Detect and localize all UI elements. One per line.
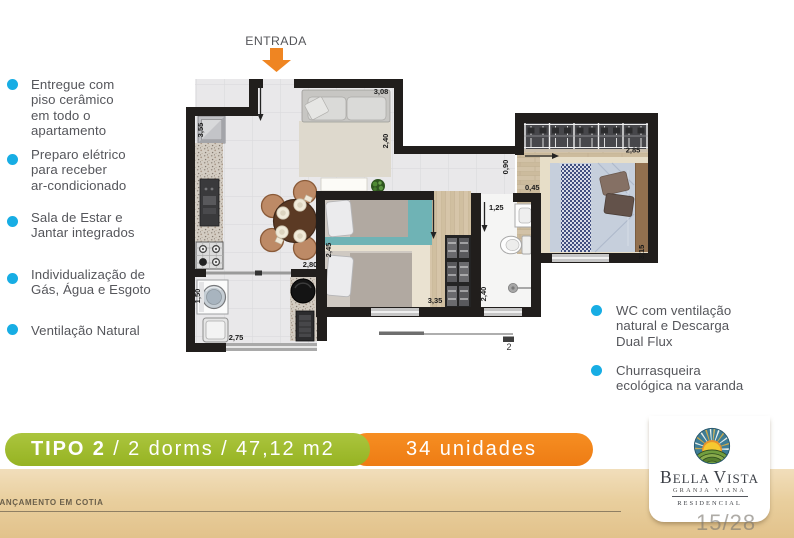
svg-text:1,50: 1,50: [193, 289, 202, 304]
svg-text:0,45: 0,45: [525, 183, 540, 192]
svg-text:2,40: 2,40: [479, 287, 488, 302]
svg-text:3,08: 3,08: [374, 87, 389, 96]
svg-text:2,40: 2,40: [381, 134, 390, 149]
svg-text:1,25: 1,25: [489, 203, 504, 212]
svg-text:2,45: 2,45: [324, 243, 333, 258]
svg-text:3,15: 3,15: [637, 245, 646, 260]
svg-text:2,80: 2,80: [303, 260, 318, 269]
svg-text:3,35: 3,35: [428, 296, 443, 305]
svg-text:2: 2: [506, 342, 511, 352]
svg-text:2,75: 2,75: [229, 333, 244, 342]
svg-text:0,90: 0,90: [501, 160, 510, 175]
svg-text:ENTRADA: ENTRADA: [245, 34, 307, 48]
svg-text:2,85: 2,85: [626, 146, 641, 155]
svg-text:3,55: 3,55: [196, 123, 205, 138]
